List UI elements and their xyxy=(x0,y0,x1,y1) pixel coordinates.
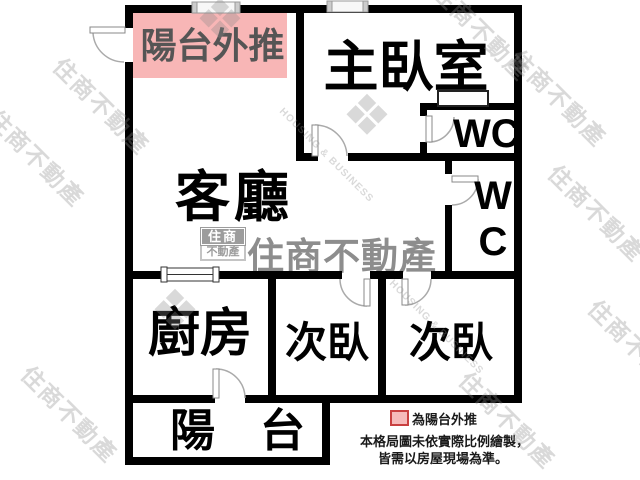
room-label-bedroom-right: 次臥 xyxy=(406,322,496,364)
room-label-bedroom-left: 次臥 xyxy=(284,322,370,364)
room-label-wc-upper: WC xyxy=(453,114,511,154)
bedroom-right-door xyxy=(402,279,431,305)
master-bedroom-door xyxy=(312,125,347,156)
room-label-kitchen: 廚房 xyxy=(138,308,262,360)
room-label-living-room: 客廳 xyxy=(172,170,296,225)
window-kitchen xyxy=(161,267,219,282)
room-label-wc-lower-c: C xyxy=(471,222,515,262)
bedroom-left-door xyxy=(340,279,370,306)
floor-plan-image: 住商 不動產 住商不動產 xyxy=(0,0,640,480)
floor-plan-drawing xyxy=(0,0,640,480)
legend-disclaimer-line2: 皆需以房屋現場為準。 xyxy=(378,448,508,467)
window-master-bedroom xyxy=(327,1,368,12)
wc-upper-door xyxy=(426,116,454,142)
room-label-balcony: 陽 台 xyxy=(160,408,315,453)
room-label-master-bedroom: 主臥室 xyxy=(322,40,490,95)
window-top-left xyxy=(192,2,240,13)
room-label-wc-lower-w: W xyxy=(471,176,515,216)
kitchen-balcony-door xyxy=(213,369,245,398)
entrance-door xyxy=(90,27,125,62)
legend-pushout-swatch xyxy=(390,410,409,426)
room-label-balcony-pushout: 陽台外推 xyxy=(140,28,285,64)
legend-swatch-label: 為陽台外推 xyxy=(412,409,477,428)
